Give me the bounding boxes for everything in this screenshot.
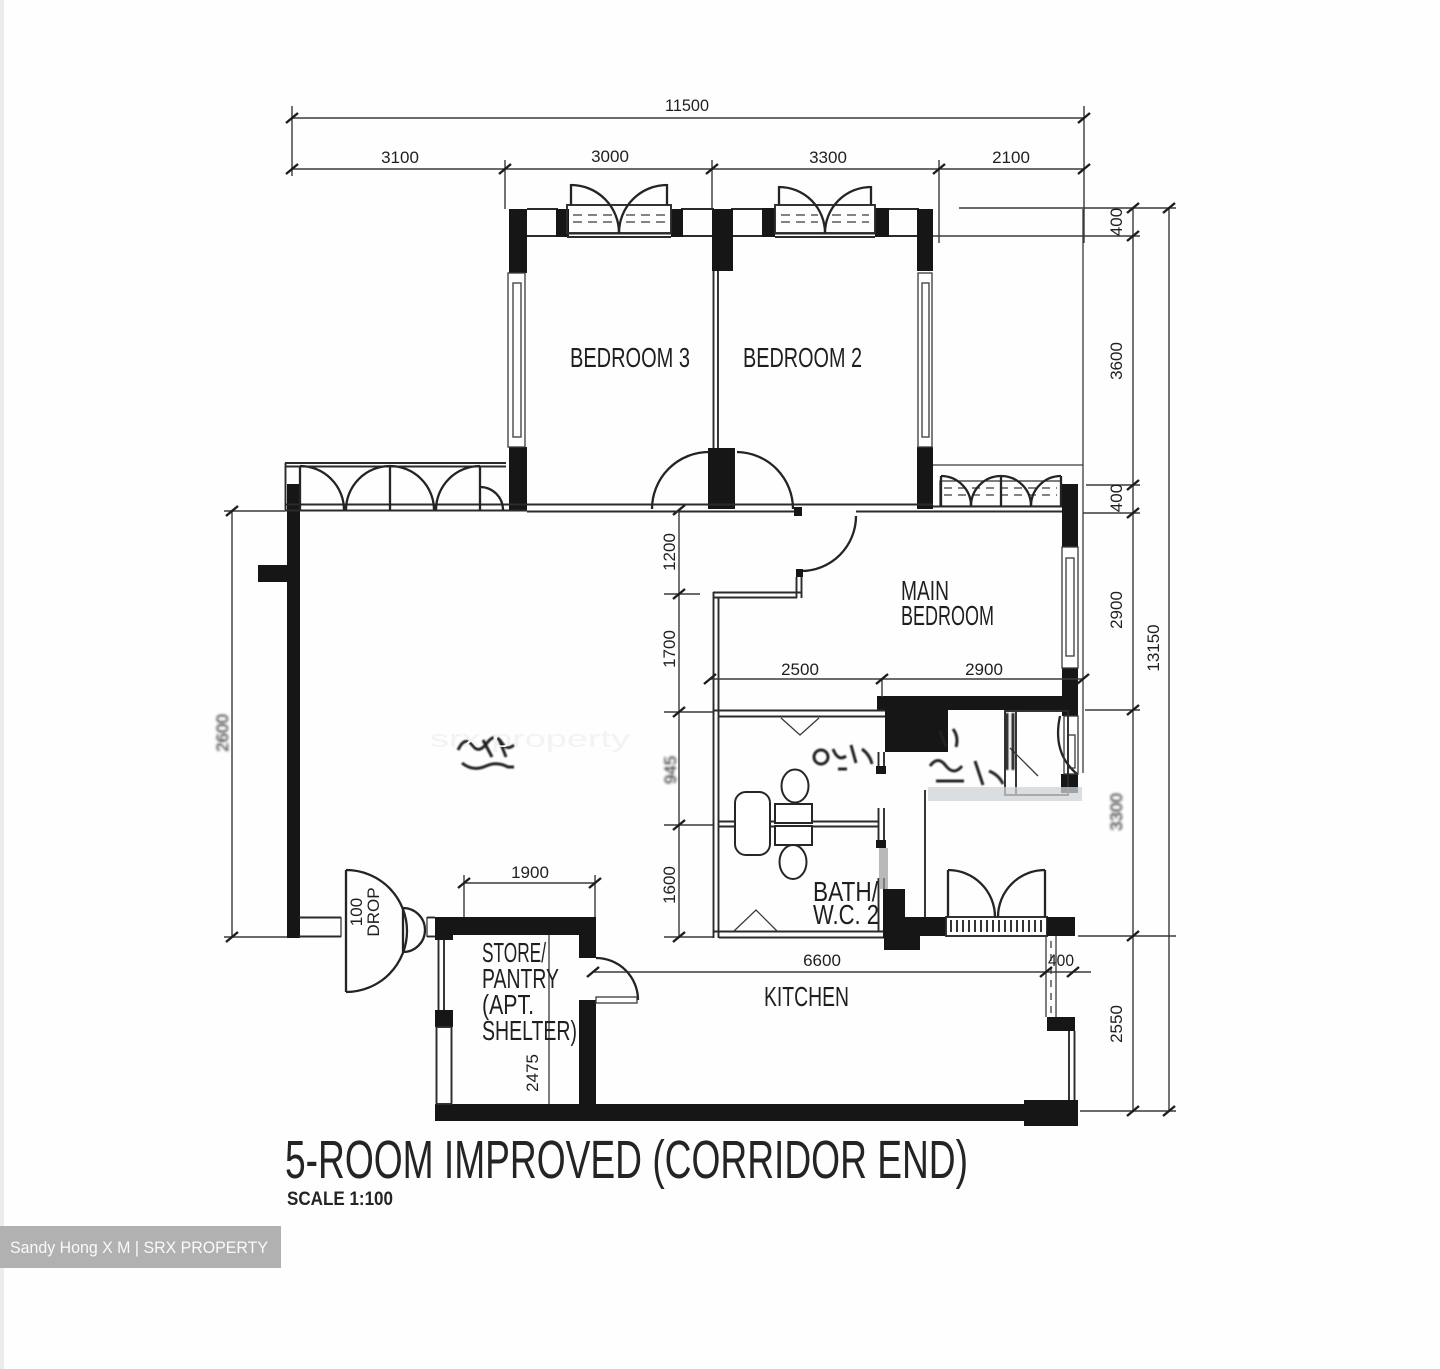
svg-text:3000: 3000 [591, 147, 629, 166]
svg-text:SCALE 1:100: SCALE 1:100 [287, 1189, 393, 1210]
svg-text:2550: 2550 [1107, 1005, 1126, 1043]
svg-text:W.C. 2: W.C. 2 [813, 899, 879, 930]
svg-text:400: 400 [1107, 484, 1126, 512]
svg-text:2900: 2900 [965, 660, 1003, 679]
svg-text:1900: 1900 [511, 863, 549, 882]
svg-text:1600: 1600 [660, 866, 679, 904]
svg-text:BEDROOM 2: BEDROOM 2 [743, 342, 862, 373]
svg-text:400: 400 [1048, 951, 1074, 970]
svg-text:400: 400 [1107, 208, 1126, 236]
svg-text:3100: 3100 [381, 148, 419, 167]
svg-text:11500: 11500 [665, 96, 709, 115]
svg-text:3600: 3600 [1107, 342, 1126, 380]
svg-text:6600: 6600 [803, 951, 841, 970]
svg-text:2900: 2900 [1107, 591, 1126, 629]
svg-text:Sandy Hong X M | SRX PROPERTY: Sandy Hong X M | SRX PROPERTY [10, 1238, 268, 1257]
svg-text:945: 945 [661, 756, 680, 784]
svg-text:BEDROOM 3: BEDROOM 3 [570, 342, 690, 373]
svg-text:BEDROOM: BEDROOM [901, 600, 994, 631]
svg-text:1700: 1700 [660, 630, 679, 668]
svg-text:3300: 3300 [809, 148, 847, 167]
svg-text:2100: 2100 [992, 148, 1030, 167]
svg-text:DROP: DROP [364, 887, 383, 936]
svg-text:SHELTER): SHELTER) [482, 1015, 577, 1046]
svg-text:1200: 1200 [660, 533, 679, 571]
svg-text:KITCHEN: KITCHEN [764, 981, 849, 1012]
svg-text:2500: 2500 [781, 660, 819, 679]
svg-text:2475: 2475 [523, 1054, 542, 1092]
svg-text:5-ROOM IMPROVED (CORRIDOR END): 5-ROOM IMPROVED (CORRIDOR END) [285, 1130, 968, 1190]
svg-text:13150: 13150 [1144, 624, 1163, 671]
svg-text:2600: 2600 [213, 714, 232, 752]
svg-text:srx property: srx property [430, 726, 630, 753]
svg-text:3300: 3300 [1107, 793, 1126, 831]
